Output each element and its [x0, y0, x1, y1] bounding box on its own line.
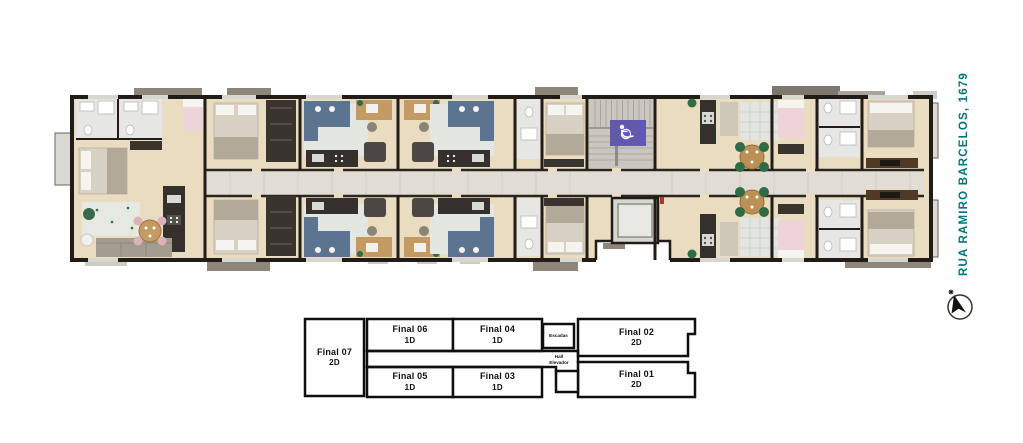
north-star-icon	[949, 290, 954, 295]
floor-plan-graphic	[0, 0, 1023, 443]
accessibility-sign	[610, 120, 646, 146]
corridor	[205, 168, 924, 198]
street-label: RUA RAMIRO BARCELOS, 1679	[958, 76, 974, 276]
elevator-shaft	[612, 198, 658, 243]
floorplan-marketing-page: Final 07 2D Final 06 1D Final 04 1D Fina…	[0, 0, 1023, 443]
keyplan-diagram	[305, 319, 695, 397]
unit-final-03	[404, 198, 584, 257]
north-compass-icon	[948, 290, 972, 320]
